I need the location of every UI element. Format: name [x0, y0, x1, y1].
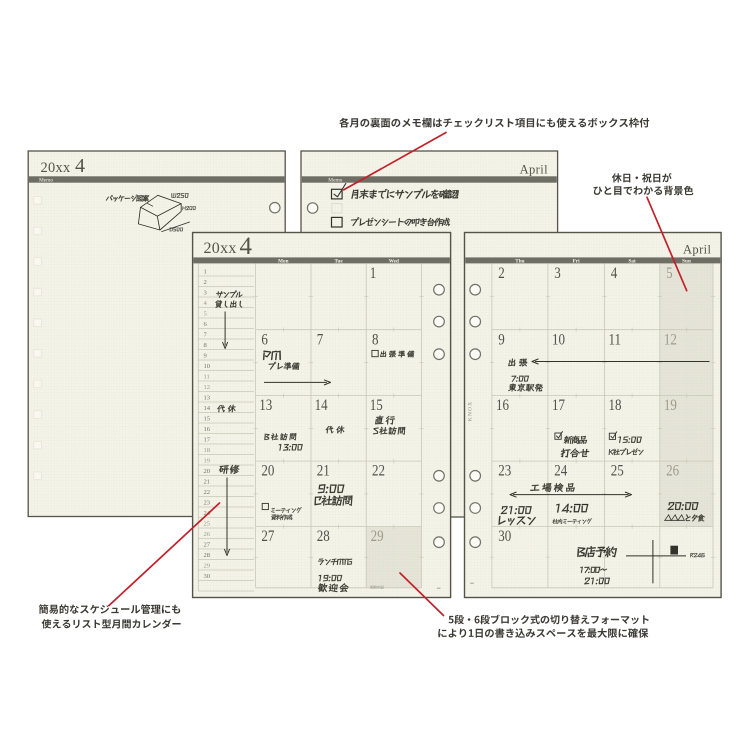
svg-text:21: 21: [204, 479, 211, 486]
svg-text:15: 15: [370, 397, 383, 414]
svg-text:8: 8: [372, 331, 379, 348]
svg-text:Fri: Fri: [573, 258, 580, 264]
svg-text:April: April: [520, 163, 549, 177]
svg-text:12: 12: [204, 384, 211, 391]
svg-text:27: 27: [261, 528, 274, 545]
svg-text:3: 3: [554, 265, 561, 282]
svg-text:28: 28: [317, 528, 330, 545]
svg-text:22: 22: [372, 463, 385, 480]
svg-text:23: 23: [204, 500, 211, 507]
svg-text:19: 19: [664, 397, 677, 414]
svg-text:20xx: 20xx: [204, 240, 237, 257]
svg-text:2: 2: [204, 279, 207, 286]
svg-text:20: 20: [204, 468, 211, 475]
svg-text:Wed: Wed: [389, 258, 399, 264]
svg-text:5: 5: [666, 265, 673, 282]
svg-text:30: 30: [498, 528, 511, 545]
svg-text:Sat: Sat: [628, 258, 635, 264]
svg-text:22: 22: [204, 489, 211, 496]
svg-text:9: 9: [498, 331, 505, 348]
svg-text:17: 17: [552, 397, 565, 414]
svg-text:20xx: 20xx: [41, 160, 71, 176]
svg-text:24: 24: [554, 463, 567, 480]
svg-text:25: 25: [204, 521, 211, 528]
svg-text:KNOX: KNOX: [468, 401, 474, 422]
svg-text:4: 4: [240, 233, 253, 260]
svg-text:20: 20: [261, 463, 274, 480]
svg-text:18: 18: [204, 447, 211, 454]
svg-text:29: 29: [204, 563, 211, 570]
svg-text:4: 4: [611, 265, 618, 282]
svg-text:7: 7: [317, 331, 324, 348]
svg-text:17: 17: [204, 437, 211, 444]
svg-text:2: 2: [498, 265, 505, 282]
svg-text:13: 13: [259, 397, 272, 414]
svg-text:16: 16: [204, 426, 211, 433]
svg-text:April: April: [683, 243, 712, 257]
svg-text:18: 18: [609, 397, 622, 414]
svg-text:19: 19: [204, 458, 211, 465]
svg-text:Tue: Tue: [335, 258, 344, 264]
svg-text:23: 23: [498, 463, 511, 480]
svg-text:29: 29: [371, 528, 384, 545]
svg-text:Memo: Memo: [39, 178, 53, 184]
svg-text:27: 27: [204, 542, 211, 549]
svg-text:11: 11: [609, 331, 622, 348]
svg-text:Thu: Thu: [515, 258, 524, 264]
svg-text:30: 30: [204, 573, 211, 580]
svg-text:4: 4: [75, 155, 85, 177]
svg-text:13: 13: [204, 395, 211, 402]
svg-text:1: 1: [370, 265, 377, 282]
svg-text:21: 21: [317, 463, 330, 480]
svg-text:15: 15: [204, 416, 211, 423]
svg-text:Mon: Mon: [278, 258, 288, 264]
svg-text:16: 16: [496, 397, 509, 414]
svg-text:28: 28: [204, 552, 211, 559]
svg-text:14: 14: [315, 397, 328, 414]
svg-text:14: 14: [204, 405, 211, 412]
svg-text:25: 25: [611, 463, 624, 480]
svg-text:26: 26: [666, 463, 679, 480]
svg-text:26: 26: [204, 531, 211, 538]
svg-text:6: 6: [261, 331, 268, 348]
svg-text:10: 10: [204, 363, 211, 370]
svg-text:10: 10: [552, 331, 565, 348]
svg-text:1: 1: [204, 269, 207, 276]
svg-text:12: 12: [664, 331, 677, 348]
svg-text:11: 11: [204, 374, 210, 381]
svg-text:Memo: Memo: [328, 178, 342, 184]
